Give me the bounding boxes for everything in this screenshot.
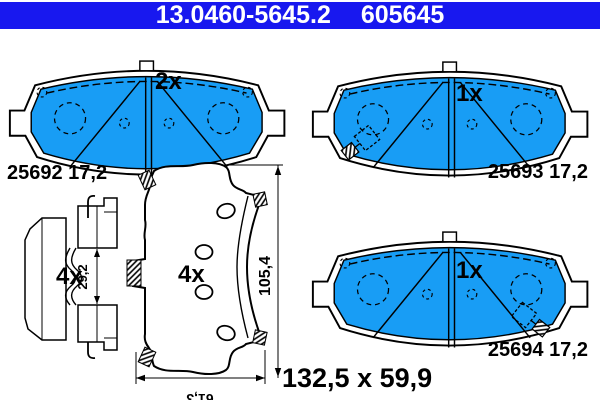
quantity-label-top-left: 2x (155, 68, 182, 95)
brake-pad-technical-drawing: 13.0460-5645.2 605645 (0, 0, 600, 400)
quantity-label-back-view: 4x (178, 261, 205, 288)
dimension-label-width: 61,3 (186, 391, 213, 400)
fitting-clip-drawing: 4x 29,2 (25, 196, 117, 358)
dimension-label-height: 105,4 (257, 256, 274, 296)
dimension-clip-gap: 29,2 (75, 249, 100, 304)
back-plate-drawing: 4x (127, 163, 267, 374)
dimension-label-clip-gap: 29,2 (75, 264, 90, 289)
quantity-label-bottom-right: 1x (456, 257, 483, 284)
pad-label-top-right: 25693 17,2 (468, 161, 588, 184)
overall-dimensions-label: 132,5 x 59,9 (282, 363, 432, 394)
pad-label-top-left: 25692 17,2 (7, 162, 107, 185)
pad-label-bottom-right: 25694 17,2 (468, 339, 588, 362)
quantity-label-top-right: 1x (456, 80, 483, 107)
pad-drawing-top-left (10, 61, 285, 176)
